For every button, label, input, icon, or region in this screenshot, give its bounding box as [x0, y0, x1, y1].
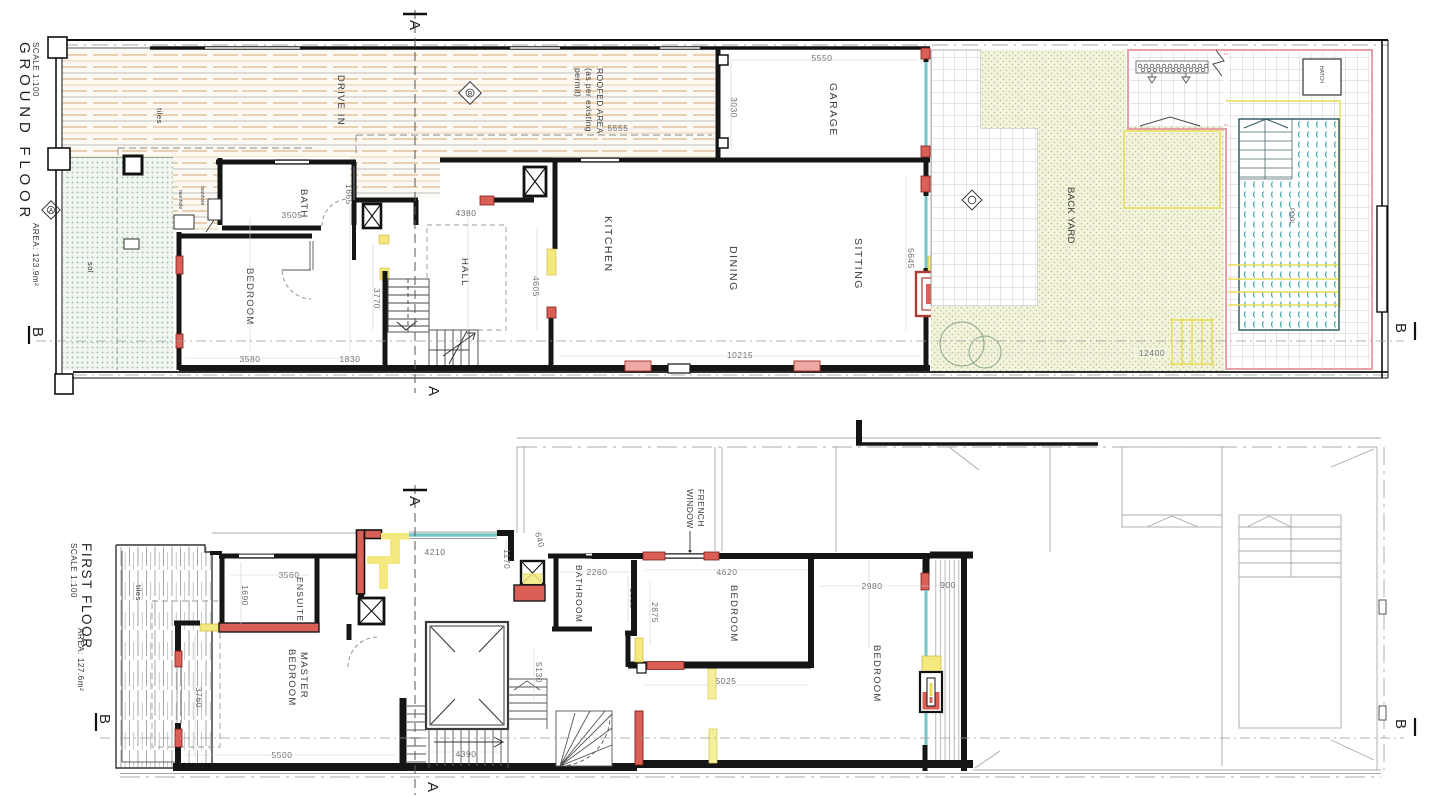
svg-text:AREA: 127.6m²: AREA: 127.6m² [76, 628, 85, 691]
svg-text:900: 900 [940, 580, 956, 590]
svg-text:BEDROOM: BEDROOM [286, 649, 297, 707]
svg-text:KITCHEN: KITCHEN [602, 216, 614, 273]
svg-text:B: B [96, 714, 113, 724]
svg-text:manhole: manhole [177, 190, 183, 209]
svg-text:3505: 3505 [282, 210, 303, 220]
svg-text:FRENCH: FRENCH [696, 489, 706, 527]
svg-text:BEDROOM: BEDROOM [871, 645, 882, 703]
svg-text:3580: 3580 [240, 354, 261, 364]
svg-text:ENSUITE: ENSUITE [295, 577, 305, 622]
svg-text:tiles: tiles [155, 108, 164, 124]
svg-text:tiles: tiles [134, 585, 143, 601]
svg-text:5130: 5130 [534, 662, 544, 683]
svg-text:(as per existing: (as per existing [584, 68, 594, 132]
svg-text:10215: 10215 [727, 350, 753, 360]
svg-text:DINING: DINING [727, 246, 739, 292]
svg-text:4605: 4605 [531, 276, 541, 297]
svg-text:MASTER: MASTER [298, 652, 309, 699]
svg-text:BEDROOM: BEDROOM [728, 585, 739, 643]
svg-text:5645: 5645 [906, 248, 916, 269]
svg-text:1665: 1665 [344, 184, 354, 205]
svg-text:4390: 4390 [456, 749, 477, 759]
svg-text:3760: 3760 [194, 687, 204, 708]
svg-text:A: A [406, 20, 423, 30]
svg-text:5550: 5550 [812, 53, 833, 63]
svg-text:A: A [425, 386, 442, 396]
svg-text:HALL: HALL [459, 258, 470, 287]
svg-text:1170: 1170 [502, 549, 512, 569]
svg-text:A: A [424, 782, 441, 792]
svg-text:AREA: 123.9m²: AREA: 123.9m² [31, 223, 40, 286]
svg-text:5555: 5555 [608, 123, 629, 133]
svg-text:BACK YARD: BACK YARD [1065, 187, 1076, 244]
svg-text:SCALE 1:100: SCALE 1:100 [69, 543, 78, 598]
svg-text:HATCH: HATCH [1318, 66, 1324, 83]
svg-text:WINDOW: WINDOW [685, 489, 695, 529]
svg-text:1690: 1690 [240, 585, 250, 606]
svg-text:ROOFED AREA: ROOFED AREA [595, 68, 605, 134]
svg-text:B: B [29, 327, 46, 337]
svg-text:SITTING: SITTING [852, 238, 864, 290]
svg-text:1830: 1830 [340, 354, 361, 364]
svg-text:GARAGE: GARAGE [827, 83, 839, 137]
svg-text:SCALE 1:100: SCALE 1:100 [31, 42, 40, 97]
svg-text:BATHROOM: BATHROOM [574, 565, 584, 623]
svg-text:POOL: POOL [1288, 208, 1294, 225]
svg-text:2875: 2875 [650, 602, 660, 623]
svg-text:B: B [468, 90, 472, 97]
svg-text:A: A [49, 207, 54, 214]
svg-text:3770: 3770 [372, 288, 382, 309]
svg-text:GROUND FLOOR: GROUND FLOOR [16, 42, 33, 222]
svg-text:5025: 5025 [716, 676, 737, 686]
svg-text:4380: 4380 [456, 208, 477, 218]
svg-text:BEDROOM: BEDROOM [244, 268, 255, 326]
svg-text:3030: 3030 [729, 97, 739, 118]
svg-text:A: A [406, 496, 423, 506]
svg-text:B: B [1392, 719, 1409, 729]
svg-text:permit): permit) [573, 68, 583, 97]
svg-text:B: B [1392, 323, 1409, 333]
svg-text:sol: sol [86, 262, 95, 273]
svg-text:DRIVE IN: DRIVE IN [335, 75, 346, 126]
svg-text:manhole: manhole [199, 186, 205, 205]
svg-text:4620: 4620 [717, 567, 738, 577]
svg-text:4210: 4210 [425, 547, 446, 557]
